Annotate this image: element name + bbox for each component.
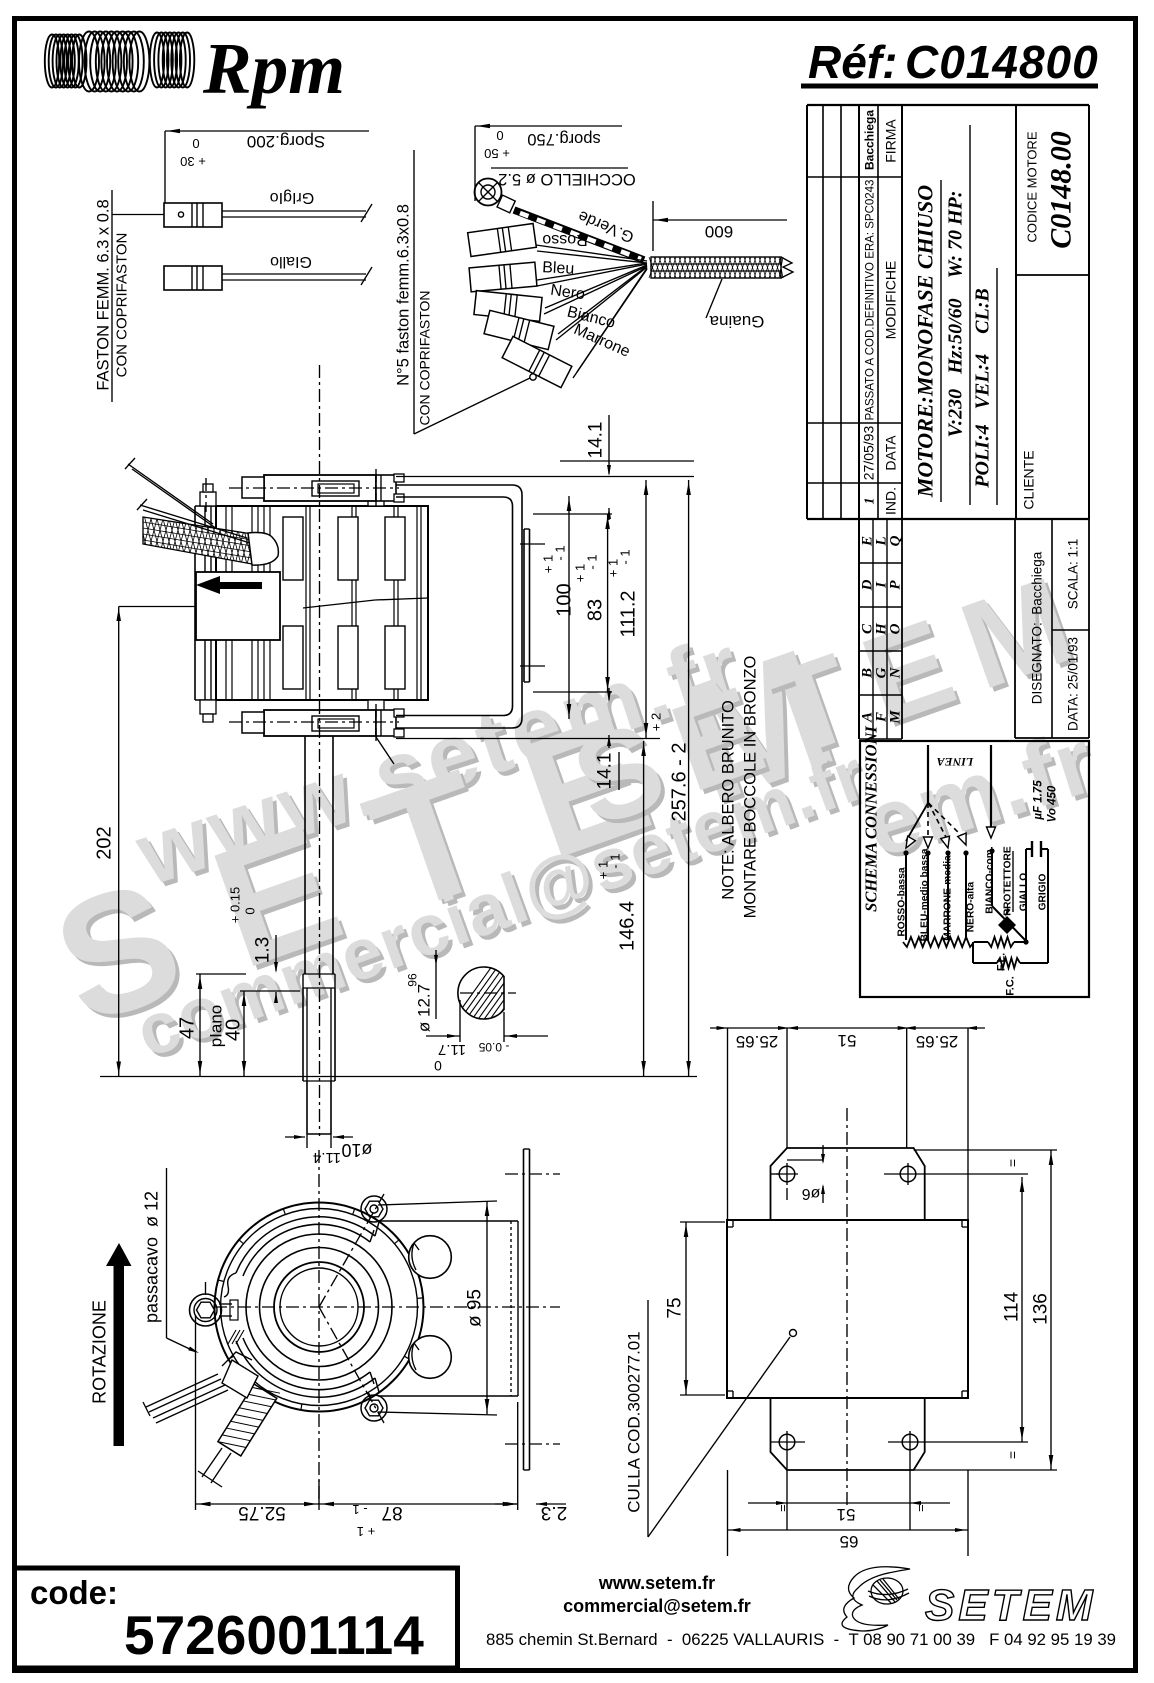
svg-text:DISEGNATO: Bacchiega: DISEGNATO: Bacchiega: [1030, 551, 1045, 704]
svg-text:14.1: 14.1: [595, 753, 616, 790]
svg-text:ø10: ø10: [341, 1140, 372, 1160]
svg-text:M: M: [888, 710, 904, 725]
svg-text:25.65: 25.65: [916, 1032, 959, 1051]
svg-text:75: 75: [665, 1297, 686, 1318]
svg-text:40: 40: [223, 1019, 245, 1041]
svg-text:96: 96: [406, 973, 420, 987]
svg-text:Rosso: Rosso: [542, 231, 587, 248]
svg-text:52.75: 52.75: [238, 1502, 286, 1523]
svg-text:SCHEMA CONNESSIONI: SCHEMA CONNESSIONI: [862, 726, 881, 912]
svg-text:+ 30: + 30: [180, 154, 206, 169]
svg-text:SETEM: SETEM: [925, 1581, 1097, 1630]
svg-text:V:230 Hz:50/60 W: 70 HP:: V:230 Hz:50/60 W: 70 HP:: [945, 191, 967, 438]
svg-text:100: 100: [554, 583, 576, 616]
svg-text:146.4: 146.4: [617, 901, 639, 951]
svg-text:LINEA: LINEA: [937, 755, 975, 769]
svg-text:51: 51: [837, 1505, 856, 1524]
svg-text:=: =: [914, 1504, 929, 1512]
svg-text:BIANCO-com.: BIANCO-com.: [985, 846, 996, 914]
svg-text:CON COPRIFASTON: CON COPRIFASTON: [417, 290, 433, 425]
svg-text:83: 83: [585, 599, 607, 621]
svg-text:SCALA: 1:1: SCALA: 1:1: [1066, 539, 1081, 610]
svg-text:- 1: - 1: [585, 554, 600, 569]
svg-text:0: 0: [434, 1058, 442, 1074]
svg-text:DATA: DATA: [883, 435, 899, 471]
svg-text:BLEU-medio bassa: BLEU-medio bassa: [920, 848, 931, 941]
svg-text:O: O: [888, 623, 904, 634]
svg-text:PROTETTORE: PROTETTORE: [1003, 846, 1014, 916]
svg-text:202: 202: [94, 826, 116, 859]
svg-text:sporg.750: sporg.750: [527, 130, 600, 148]
svg-text:ø6: ø6: [802, 1185, 821, 1202]
svg-text:+ 0.15: + 0.15: [228, 887, 243, 924]
svg-text:0: 0: [496, 128, 503, 143]
svg-text:ROSSO-bassa: ROSSO-bassa: [897, 867, 908, 936]
svg-text:Vo 450: Vo 450: [1047, 785, 1059, 822]
svg-text:GIallo: GIallo: [270, 253, 312, 270]
svg-text:11.4: 11.4: [313, 1149, 341, 1166]
svg-text:DATA: 25/01/93: DATA: 25/01/93: [1066, 637, 1081, 731]
svg-text:NERO-alta: NERO-alta: [966, 881, 977, 932]
svg-text:0: 0: [243, 907, 258, 914]
svg-text:- 0.05: - 0.05: [478, 1040, 509, 1054]
svg-text:MONTARE BOCCOLE IN BRONZO: MONTARE BOCCOLE IN BRONZO: [742, 655, 760, 918]
svg-text:P: P: [888, 580, 904, 590]
svg-text:FASTON FEMM. 6.3 x 0.8: FASTON FEMM. 6.3 x 0.8: [95, 199, 113, 390]
svg-text:PASSATO A COD.DEFINITIVO ERA:: PASSATO A COD.DEFINITIVO ERA: SPC0243: [865, 180, 877, 421]
svg-text:Sporg.200: Sporg.200: [247, 132, 325, 151]
svg-text:=: =: [776, 1504, 791, 1512]
svg-text:MODIFICHE: MODIFICHE: [883, 261, 899, 340]
svg-text:14.1: 14.1: [586, 422, 607, 459]
svg-text:111.2: 111.2: [618, 590, 640, 637]
svg-text:600: 600: [705, 222, 733, 241]
svg-text:257.6 - 2: 257.6 - 2: [669, 743, 691, 822]
svg-text:=: =: [1005, 1451, 1021, 1459]
svg-text:+ 50: + 50: [484, 146, 510, 161]
svg-text:CON COPRIFASTON: CON COPRIFASTON: [114, 233, 131, 378]
svg-text:Bleu: Bleu: [542, 259, 575, 278]
svg-text:NOTE: ALBERO BRUNITO: NOTE: ALBERO BRUNITO: [720, 700, 738, 900]
svg-text:136: 136: [1031, 1293, 1052, 1325]
svg-text:- 1: - 1: [608, 853, 623, 868]
svg-text:MOTORE:MONOFASE CHIUSO: MOTORE:MONOFASE CHIUSO: [913, 185, 938, 498]
svg-text:Q: Q: [888, 535, 904, 546]
svg-text:N: N: [888, 666, 904, 679]
svg-text:N°5 faston femm.6.3x0.8: N°5 faston femm.6.3x0.8: [395, 204, 413, 386]
svg-text:C014800: C014800: [905, 36, 1099, 88]
svg-text:Réf:: Réf:: [808, 36, 897, 88]
svg-text:+ 2: + 2: [649, 713, 664, 731]
svg-text:114: 114: [1002, 1291, 1023, 1322]
svg-text:Rpm: Rpm: [202, 28, 345, 109]
svg-text:CULLA COD.300277.01: CULLA COD.300277.01: [625, 1331, 644, 1512]
svg-text:47: 47: [177, 1017, 199, 1039]
svg-text:FIRMA: FIRMA: [883, 119, 899, 163]
svg-text:POLI:4 VEL:4 CL:B: POLI:4 VEL:4 CL:B: [972, 288, 994, 488]
svg-text:GIALLO: GIALLO: [1019, 873, 1030, 912]
svg-text:CLIENTE: CLIENTE: [1021, 450, 1037, 509]
svg-text:µF 1.75: µF 1.75: [1033, 780, 1045, 821]
svg-text:www.setem.fr: www.setem.fr: [598, 1573, 715, 1593]
svg-text:5726001114: 5726001114: [124, 1604, 424, 1666]
svg-text:ROTAZIONE: ROTAZIONE: [90, 1300, 110, 1404]
svg-text:+ 1: + 1: [357, 1524, 375, 1539]
svg-text:51: 51: [838, 1031, 857, 1050]
svg-text:87: 87: [381, 1502, 402, 1523]
svg-text:885 chemin St.Bernard - 0622: 885 chemin St.Bernard - 06225 VALLAURIS …: [486, 1630, 1116, 1649]
svg-text:code:: code:: [30, 1574, 118, 1611]
svg-text:1: 1: [863, 498, 878, 505]
svg-text:CODICE MOTORE: CODICE MOTORE: [1025, 131, 1040, 242]
svg-text:ø 95: ø 95: [465, 1289, 486, 1327]
svg-text:IND.: IND.: [883, 487, 899, 515]
svg-text:Guaina: Guaina: [709, 312, 764, 331]
svg-text:Bacchiega: Bacchiega: [863, 110, 877, 170]
svg-text:- 1: - 1: [553, 545, 568, 560]
svg-text:passacavo ø 12: passacavo ø 12: [142, 1191, 162, 1323]
svg-text:65: 65: [840, 1532, 859, 1551]
svg-text:0: 0: [192, 136, 199, 151]
svg-text:=: =: [1005, 1159, 1021, 1167]
svg-text:2.3: 2.3: [541, 1502, 567, 1523]
svg-text:11.7: 11.7: [438, 1041, 466, 1058]
svg-text:GRIGIO: GRIGIO: [1038, 874, 1049, 911]
svg-text:ø 12.7: ø 12.7: [415, 984, 434, 1032]
svg-text:- 1: - 1: [352, 1502, 367, 1517]
svg-text:27/05/93: 27/05/93: [861, 426, 877, 481]
svg-text:commercial@setem.fr: commercial@setem.fr: [563, 1596, 751, 1616]
svg-text:F.C.: F.C.: [1005, 976, 1017, 996]
svg-text:OCCHIELLO ø 5.2: OCCHIELLO ø 5.2: [498, 170, 636, 188]
svg-text:GrIgIo: GrIgIo: [270, 189, 315, 206]
svg-text:C0148.00: C0148.00: [1045, 131, 1078, 249]
svg-text:- 1: - 1: [618, 549, 633, 564]
svg-text:1.3: 1.3: [253, 937, 274, 963]
svg-text:MARRONE-media: MARRONE-media: [943, 855, 954, 941]
svg-text:25.65: 25.65: [736, 1032, 779, 1051]
